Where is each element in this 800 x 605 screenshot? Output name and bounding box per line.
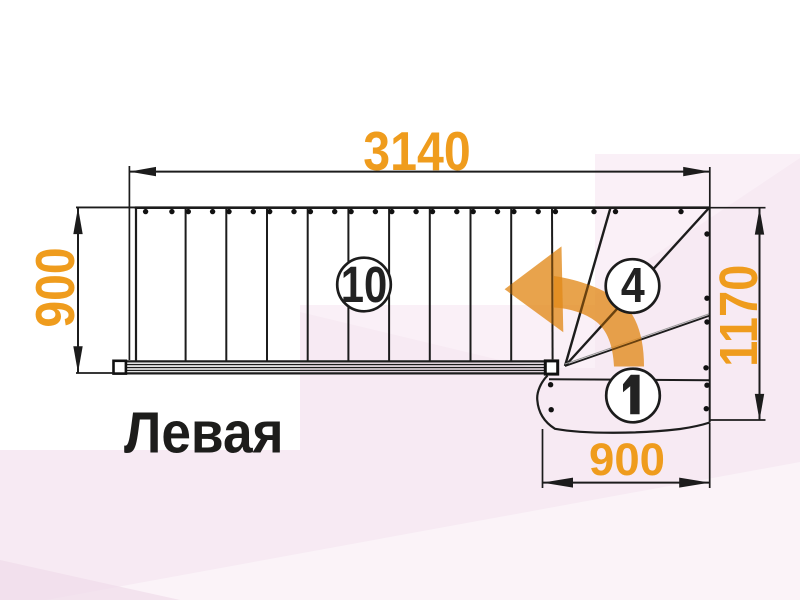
svg-text:3140: 3140 (363, 120, 470, 182)
svg-text:1170: 1170 (708, 265, 769, 367)
svg-text:Левая: Левая (124, 399, 284, 465)
svg-text:900: 900 (589, 434, 665, 485)
svg-text:4: 4 (621, 257, 645, 312)
svg-text:10: 10 (341, 256, 388, 313)
svg-text:900: 900 (24, 247, 86, 327)
